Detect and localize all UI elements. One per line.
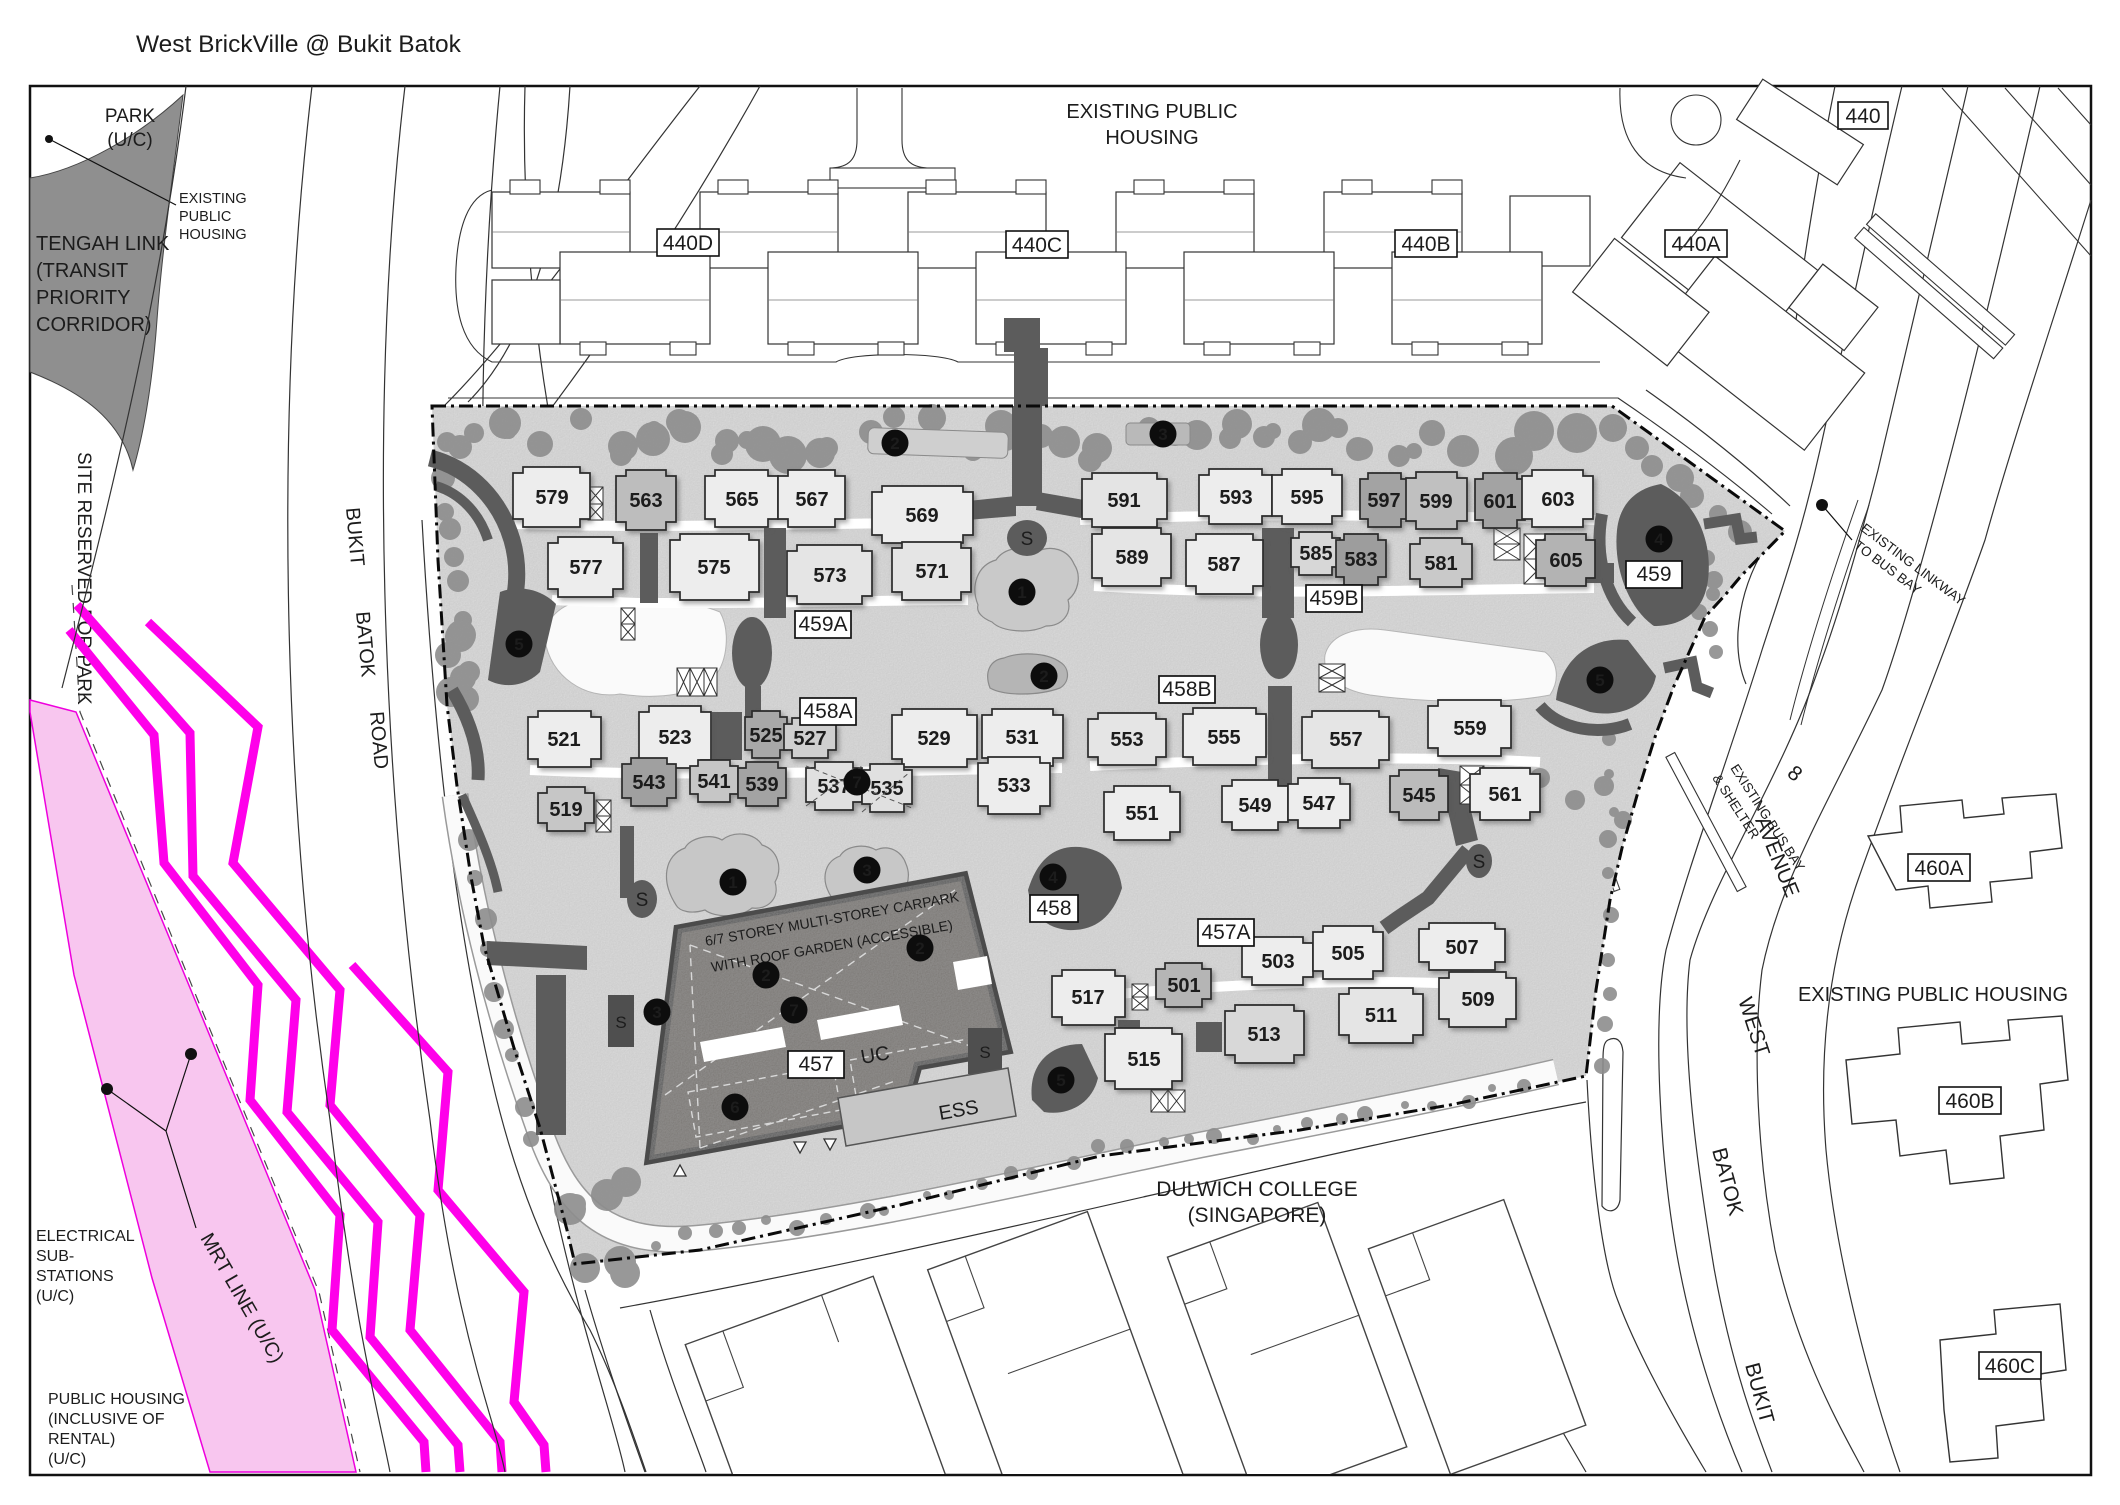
svg-text:589: 589 [1115,547,1148,569]
svg-text:595: 595 [1290,487,1323,509]
svg-text:4: 4 [1654,530,1664,549]
svg-text:7: 7 [852,773,861,792]
svg-text:553: 553 [1110,729,1143,751]
svg-text:593: 593 [1219,487,1252,509]
svg-text:(U/C): (U/C) [107,130,152,151]
svg-text:509: 509 [1461,989,1494,1011]
svg-text:440B: 440B [1401,233,1450,256]
svg-text:PARK: PARK [105,106,156,127]
svg-text:460B: 460B [1945,1090,1994,1113]
svg-text:S: S [1021,529,1034,550]
svg-text:529: 529 [917,728,950,750]
svg-text:4: 4 [1048,868,1058,887]
svg-text:523: 523 [658,727,691,749]
svg-text:DULWICH COLLEGE: DULWICH COLLEGE [1156,1178,1357,1201]
svg-text:6: 6 [730,1098,739,1117]
svg-text:5: 5 [1056,1071,1065,1090]
svg-text:(TRANSIT: (TRANSIT [36,260,128,282]
svg-text:ELECTRICAL: ELECTRICAL [36,1228,135,1245]
svg-text:599: 599 [1419,491,1452,513]
svg-text:EXISTING PUBLIC HOUSING: EXISTING PUBLIC HOUSING [1798,984,2068,1006]
svg-text:West BrickVille @ Bukit Batok: West BrickVille @ Bukit Batok [136,31,462,58]
svg-text:521: 521 [547,729,580,751]
svg-text:585: 585 [1299,543,1332,565]
svg-text:EXISTING: EXISTING [179,191,247,207]
svg-text:555: 555 [1207,727,1240,749]
svg-text:507: 507 [1445,937,1478,959]
svg-text:541: 541 [697,771,730,793]
svg-text:2: 2 [1039,667,1048,686]
svg-text:515: 515 [1127,1049,1160,1071]
svg-text:605: 605 [1549,550,1582,572]
svg-text:577: 577 [569,557,602,579]
svg-text:458B: 458B [1162,678,1211,701]
svg-text:RENTAL): RENTAL) [48,1431,115,1448]
svg-text:545: 545 [1402,785,1435,807]
svg-text:525: 525 [749,725,782,747]
svg-text:557: 557 [1329,729,1362,751]
svg-text:533: 533 [997,775,1030,797]
svg-text:5: 5 [514,635,523,654]
svg-text:527: 527 [793,728,826,750]
svg-text:SITE RESERVED FOR PARK: SITE RESERVED FOR PARK [73,452,94,705]
svg-text:3: 3 [862,861,871,880]
svg-text:551: 551 [1125,803,1158,825]
svg-text:S: S [1473,852,1486,873]
svg-text:7: 7 [789,1001,798,1020]
svg-text:2: 2 [915,939,924,958]
svg-text:459A: 459A [798,613,847,636]
svg-text:2: 2 [890,434,899,453]
svg-text:459B: 459B [1309,587,1358,610]
svg-text:519: 519 [549,799,582,821]
svg-text:3: 3 [1158,425,1167,444]
svg-text:459: 459 [1636,563,1671,586]
svg-text:587: 587 [1207,554,1240,576]
svg-text:565: 565 [725,489,758,511]
svg-text:591: 591 [1107,490,1140,512]
svg-text:SUB-: SUB- [36,1248,74,1265]
svg-text:547: 547 [1302,793,1335,815]
svg-text:559: 559 [1453,718,1486,740]
svg-text:539: 539 [745,774,778,796]
svg-text:549: 549 [1238,795,1271,817]
svg-text:569: 569 [905,505,938,527]
svg-text:581: 581 [1424,553,1457,575]
svg-text:CORRIDOR): CORRIDOR) [36,314,152,336]
svg-text:HOUSING: HOUSING [1105,127,1198,149]
svg-text:440C: 440C [1012,234,1062,257]
svg-text:PRIORITY: PRIORITY [36,287,130,309]
svg-text:S: S [636,890,649,911]
svg-text:TENGAH LINK: TENGAH LINK [36,233,170,255]
svg-text:S: S [979,1043,990,1062]
svg-text:583: 583 [1344,549,1377,571]
svg-text:460C: 460C [1985,1355,2035,1378]
svg-text:(U/C): (U/C) [48,1451,86,1468]
svg-text:575: 575 [697,557,730,579]
svg-text:457: 457 [798,1053,833,1076]
svg-text:505: 505 [1331,943,1364,965]
svg-text:503: 503 [1261,951,1294,973]
svg-text:3: 3 [652,1003,661,1022]
svg-text:S: S [615,1013,626,1032]
svg-text:(SINGAPORE): (SINGAPORE) [1188,1204,1327,1227]
svg-text:513: 513 [1247,1024,1280,1046]
svg-text:457A: 457A [1201,921,1250,944]
svg-text:PUBLIC HOUSING: PUBLIC HOUSING [48,1391,185,1408]
svg-text:531: 531 [1005,727,1038,749]
svg-text:458A: 458A [803,700,852,723]
svg-text:HOUSING: HOUSING [179,227,247,243]
svg-text:STATIONS: STATIONS [36,1268,114,1285]
svg-text:601: 601 [1483,491,1516,513]
svg-text:571: 571 [915,561,948,583]
svg-text:440D: 440D [663,232,713,255]
svg-text:1: 1 [728,873,737,892]
svg-text:EXISTING PUBLIC: EXISTING PUBLIC [1066,101,1237,123]
svg-text:(U/C): (U/C) [36,1288,74,1305]
svg-text:440: 440 [1845,105,1880,128]
svg-text:567: 567 [795,489,828,511]
svg-text:543: 543 [632,772,665,794]
svg-text:PUBLIC: PUBLIC [179,209,231,225]
svg-text:563: 563 [629,490,662,512]
svg-text:561: 561 [1488,784,1521,806]
svg-text:2: 2 [761,966,770,985]
svg-text:597: 597 [1367,490,1400,512]
svg-text:603: 603 [1541,489,1574,511]
svg-text:(INCLUSIVE OF: (INCLUSIVE OF [48,1411,165,1428]
svg-text:458: 458 [1036,897,1071,920]
svg-text:501: 501 [1167,975,1200,997]
svg-text:440A: 440A [1671,233,1720,256]
svg-text:517: 517 [1071,987,1104,1009]
svg-text:1: 1 [1017,583,1026,602]
svg-text:460A: 460A [1914,857,1963,880]
svg-text:511: 511 [1365,1005,1397,1027]
svg-text:5: 5 [1595,671,1604,690]
svg-text:573: 573 [813,565,846,587]
svg-text:579: 579 [535,487,568,509]
